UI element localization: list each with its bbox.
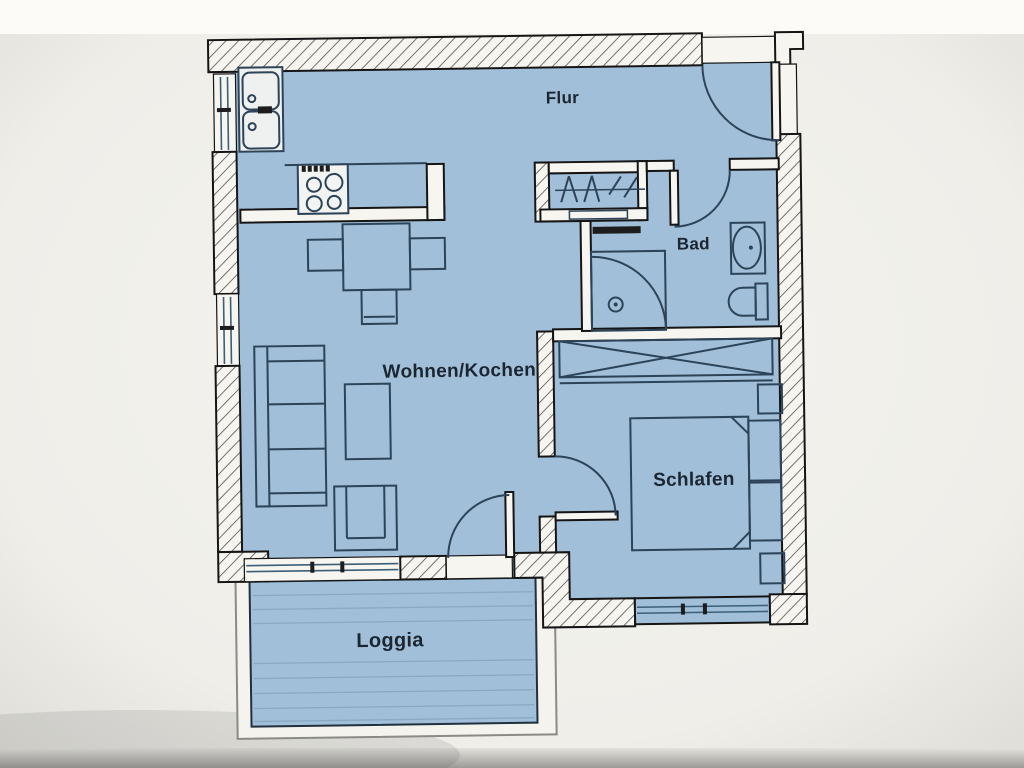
entrance-door-leaf xyxy=(771,62,780,140)
balcony-door-leaf xyxy=(505,492,514,557)
entrance-threshold xyxy=(702,36,775,63)
wall-south-pier xyxy=(400,556,446,580)
wall-living-bedroom-stub xyxy=(540,516,557,552)
wardrobe-top-band xyxy=(549,161,647,173)
room-label-schlafen: Schlafen xyxy=(653,469,735,491)
wall-bath-north-left xyxy=(647,161,674,171)
room-label-wohnen-kochen: Wohnen/Kochen xyxy=(382,360,536,383)
paper-top-band xyxy=(0,0,1024,34)
shoe-cabinet xyxy=(569,210,627,219)
stove xyxy=(298,164,349,214)
sink-divider xyxy=(258,106,272,113)
wall-west-2 xyxy=(215,366,242,552)
room-label-bad: Bad xyxy=(677,234,710,253)
room-label-loggia: Loggia xyxy=(356,629,424,652)
room-label-flur: Flur xyxy=(546,88,580,107)
balcony-door-threshold xyxy=(446,555,512,579)
wall-living-bedroom xyxy=(537,331,555,456)
wall-corner-se xyxy=(770,594,807,625)
bedroom-window xyxy=(635,596,770,624)
kitchen-window xyxy=(213,74,236,152)
counter-return xyxy=(427,164,445,220)
shower-screen xyxy=(593,226,641,234)
wall-bath-north-right xyxy=(730,158,779,170)
wall-west-1 xyxy=(213,152,239,294)
loggia-floor xyxy=(250,578,538,727)
living-window-left xyxy=(216,294,239,366)
bathroom-door-leaf xyxy=(670,171,679,225)
floorplan-photo: Flur Bad Wohnen/Kochen Schlafen Loggia xyxy=(0,0,1024,768)
bedroom-door-leaf xyxy=(556,512,618,521)
